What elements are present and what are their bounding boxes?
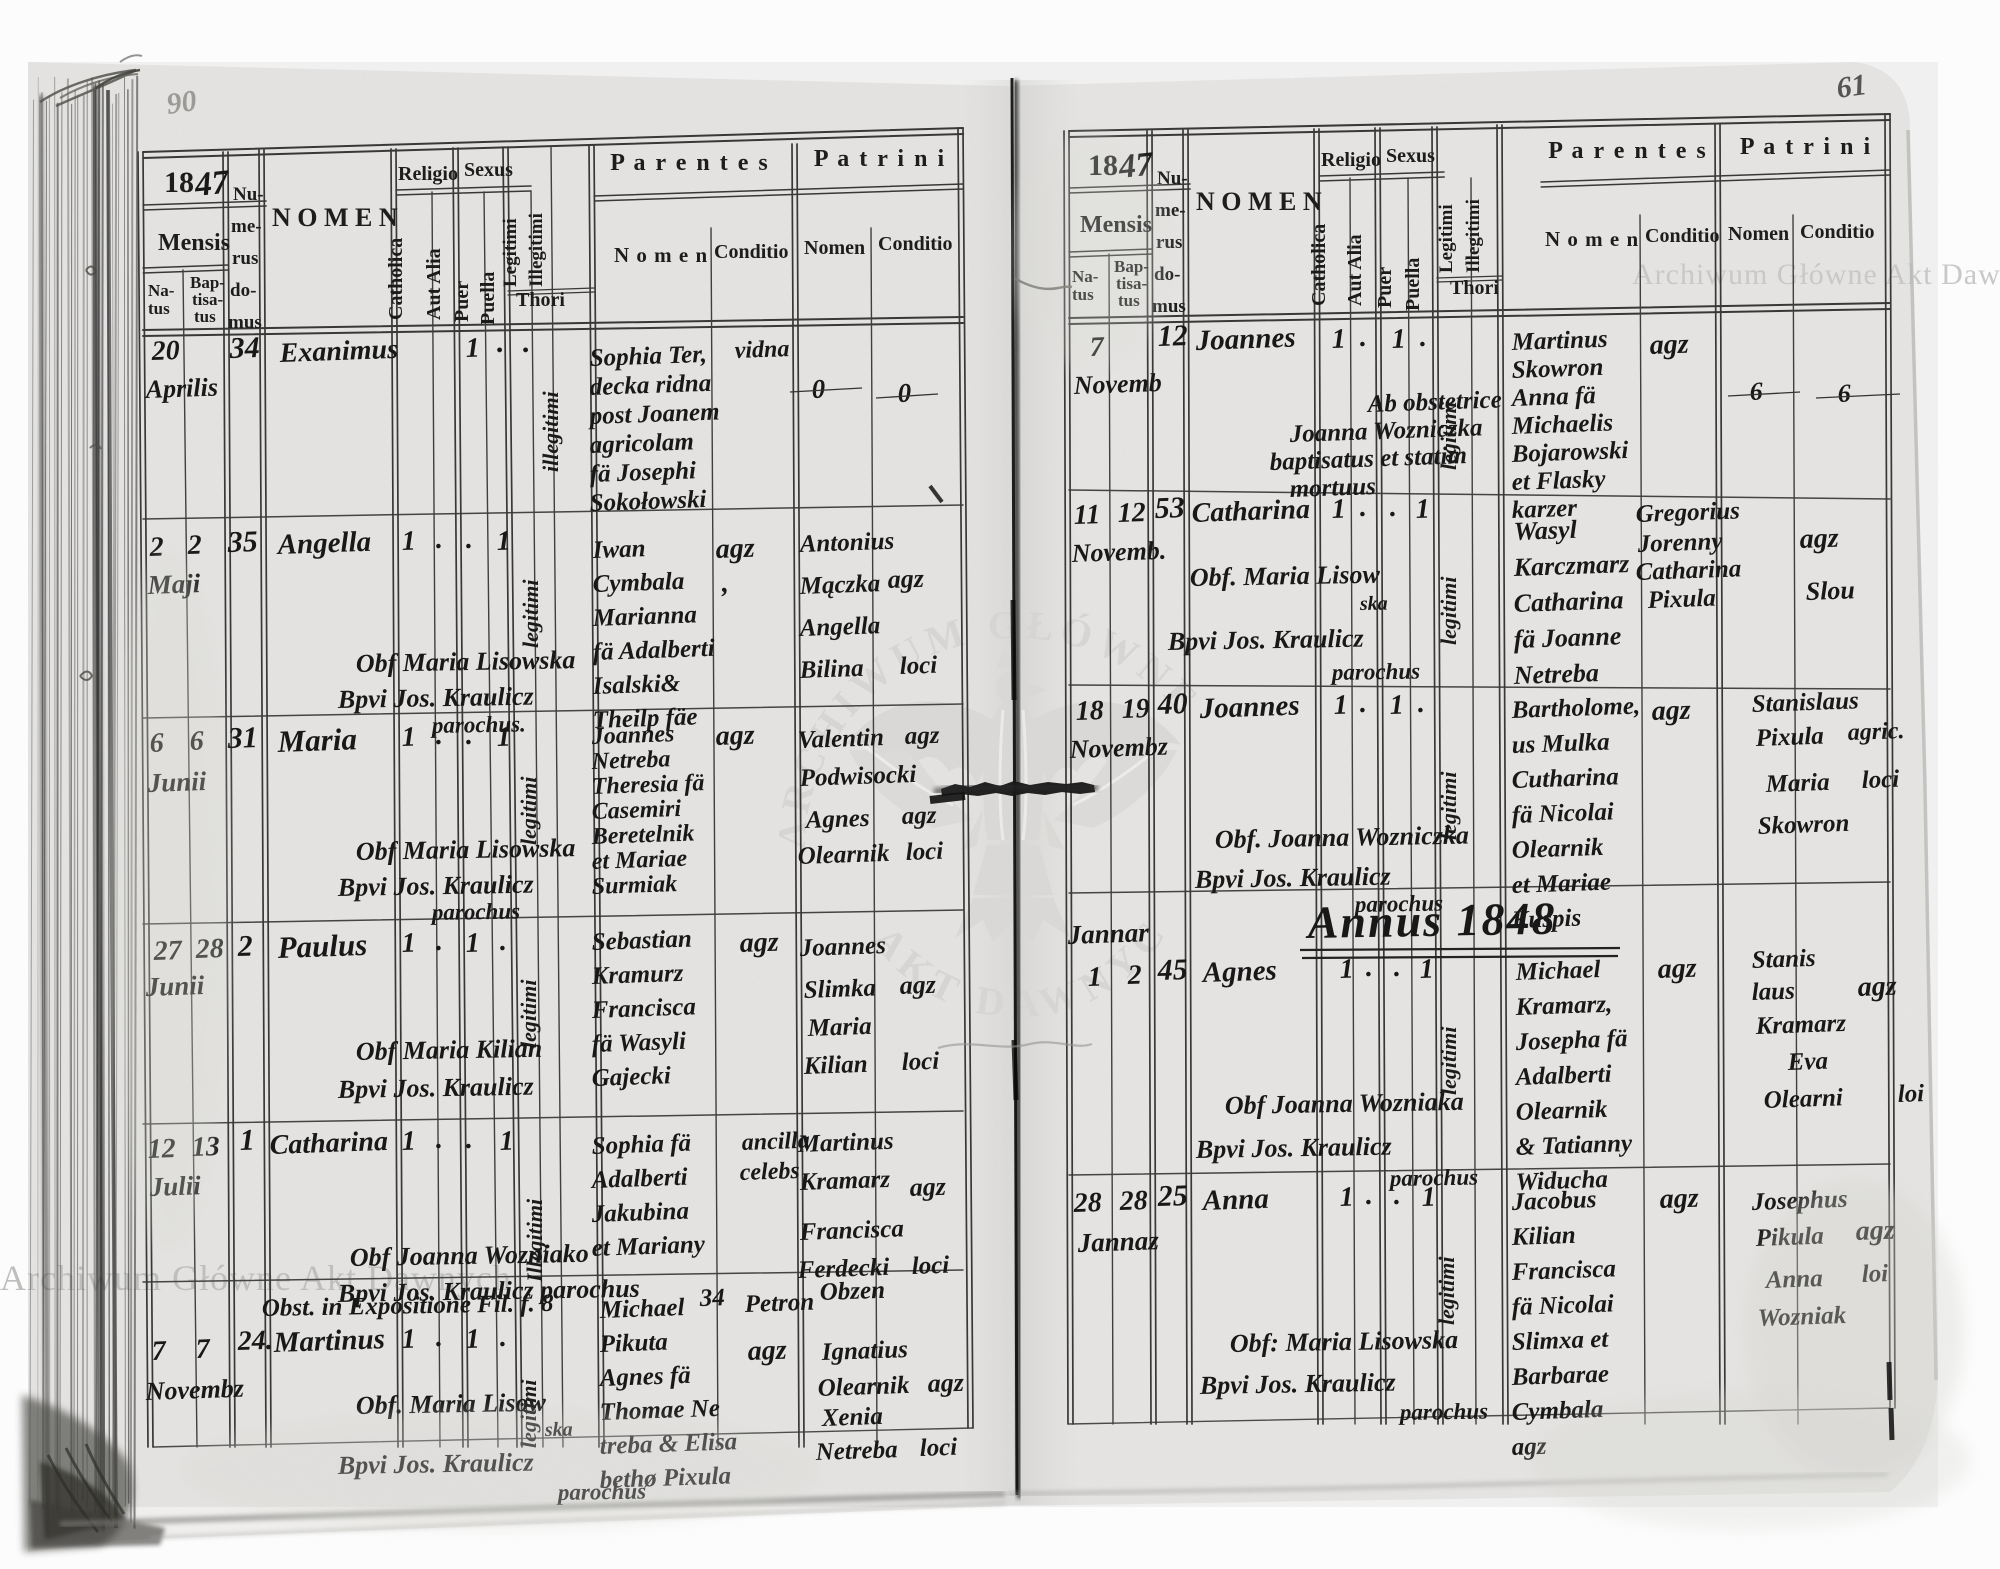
svg-text:Eva: Eva: [1786, 1048, 1828, 1076]
svg-text:1: 1: [401, 928, 416, 959]
svg-text:Olearnik: Olearnik: [797, 840, 890, 870]
svg-text:Bojarowski: Bojarowski: [1510, 437, 1629, 468]
svg-text:,: ,: [720, 568, 729, 599]
svg-text:Catharina: Catharina: [269, 1126, 388, 1161]
svg-text:Antonius: Antonius: [797, 528, 894, 558]
svg-text:agz: agz: [1657, 953, 1697, 985]
svg-text:Novembz: Novembz: [144, 1374, 245, 1406]
svg-text:fä Adalberti: fä Adalberti: [592, 635, 715, 666]
svg-text:Pixula: Pixula: [1646, 585, 1716, 614]
svg-text:loci: loci: [911, 1252, 949, 1280]
svg-text:7: 7: [195, 1333, 211, 1365]
svg-text:Jacobus: Jacobus: [1510, 1186, 1597, 1216]
svg-text:agz: agz: [1649, 329, 1689, 361]
svg-text:1: 1: [1389, 690, 1404, 721]
svg-text:Jorenny: Jorenny: [1636, 528, 1724, 558]
svg-text:Bpvi Jos. Kraulicz: Bpvi Jos. Kraulicz: [337, 1072, 535, 1104]
svg-text:tus: tus: [194, 307, 216, 326]
svg-text:Bpvi Jos. Kraulicz: Bpvi Jos. Kraulicz: [1194, 862, 1392, 894]
svg-text:fä Joanne: fä Joanne: [1513, 621, 1622, 654]
svg-text:Obf Maria Kilian: Obf Maria Kilian: [356, 1034, 543, 1066]
svg-text:Catharina: Catharina: [1635, 555, 1741, 586]
svg-text:Sexus: Sexus: [464, 159, 513, 181]
svg-text:N o m e n: N o m e n: [614, 243, 708, 267]
svg-text:et Flasky: et Flasky: [1511, 466, 1607, 496]
svg-text:me-: me-: [231, 216, 262, 237]
svg-text:legitimi: legitimi: [1434, 1256, 1459, 1325]
svg-text:Adalberti: Adalberti: [1513, 1061, 1612, 1091]
svg-text:mus: mus: [228, 312, 262, 333]
svg-text:Obf. Joanna Wozniczka: Obf. Joanna Wozniczka: [1215, 821, 1470, 854]
svg-text:.: .: [465, 720, 473, 751]
svg-text:Valentin: Valentin: [797, 724, 884, 754]
svg-text:28: 28: [1118, 1185, 1148, 1217]
svg-text:celebs: celebs: [739, 1158, 800, 1186]
svg-text:1: 1: [499, 1126, 514, 1157]
svg-text:Illegitimi: Illegitimi: [526, 213, 547, 287]
svg-text:Aprilis: Aprilis: [143, 372, 218, 404]
svg-text:decka ridna: decka ridna: [589, 370, 711, 401]
svg-text:agz: agz: [887, 564, 925, 594]
svg-text:19: 19: [1121, 693, 1150, 725]
svg-text:.: .: [1419, 322, 1427, 353]
svg-text:Cymbala: Cymbala: [592, 568, 685, 598]
svg-text:0: 0: [897, 378, 912, 408]
svg-text:.: .: [496, 326, 505, 359]
svg-text:Kramurz: Kramurz: [590, 960, 684, 990]
svg-text:2: 2: [186, 530, 202, 562]
svg-text:parochus: parochus: [430, 898, 521, 925]
svg-text:1: 1: [1339, 954, 1354, 985]
svg-text:11: 11: [1073, 499, 1101, 531]
svg-text:us Mulka: us Mulka: [1511, 729, 1610, 759]
svg-text:Maria: Maria: [276, 721, 357, 759]
svg-text:Jannaz: Jannaz: [1076, 1225, 1160, 1258]
svg-text:Kramarz: Kramarz: [1754, 1010, 1846, 1040]
svg-text:Francisca: Francisca: [1510, 1255, 1616, 1286]
svg-text:1: 1: [401, 1324, 416, 1355]
svg-text:agz: agz: [1799, 523, 1839, 555]
svg-text:Aut Alia: Aut Alia: [1344, 234, 1366, 306]
svg-text:Francisca: Francisca: [798, 1215, 904, 1246]
svg-text:1: 1: [1333, 690, 1348, 721]
svg-text:Skowron: Skowron: [1757, 810, 1850, 840]
svg-text:Conditio: Conditio: [1645, 225, 1719, 247]
svg-text:.: .: [499, 1322, 507, 1353]
svg-text:Marianna: Marianna: [591, 601, 697, 632]
svg-text:Netreba: Netreba: [1512, 658, 1599, 690]
svg-text:loci: loci: [1861, 766, 1899, 794]
svg-text:Martinus: Martinus: [272, 1323, 385, 1359]
svg-text:0: 0: [811, 374, 826, 404]
svg-text:Illegitimi: Illegitimi: [1463, 199, 1484, 273]
svg-text:agz: agz: [1857, 971, 1897, 1003]
svg-text:Anna: Anna: [1200, 1183, 1269, 1217]
svg-text:vidna: vidna: [734, 336, 790, 364]
svg-text:Obzen: Obzen: [819, 1277, 885, 1306]
svg-text:Olearnik: Olearnik: [817, 1372, 910, 1402]
svg-text:Mensis: Mensis: [158, 230, 230, 256]
svg-text:loci: loci: [905, 838, 943, 866]
svg-text:Religio: Religio: [398, 163, 458, 185]
svg-text:.: .: [435, 1322, 443, 1353]
svg-text:Petron: Petron: [743, 1289, 814, 1318]
svg-text:legitimi: legitimi: [1436, 1026, 1461, 1095]
svg-text:Michael: Michael: [598, 1294, 685, 1324]
svg-text:Cutharina: Cutharina: [1511, 763, 1619, 794]
svg-text:Paulus: Paulus: [276, 927, 368, 965]
svg-text:18: 18: [164, 166, 194, 199]
svg-text:agric.: agric.: [1847, 718, 1905, 746]
svg-text:.: .: [435, 524, 443, 555]
svg-text:Gajecki: Gajecki: [591, 1062, 671, 1092]
svg-text:Joannes: Joannes: [1194, 322, 1296, 358]
svg-text:P a t r i n i: P a t r i n i: [1740, 134, 1872, 160]
svg-text:Joannes: Joannes: [798, 932, 886, 962]
svg-text:1: 1: [465, 333, 480, 364]
svg-text:Sophia Ter,: Sophia Ter,: [589, 341, 707, 372]
svg-text:Ab obstetrice: Ab obstetrice: [1365, 386, 1502, 418]
svg-text:1: 1: [1391, 324, 1406, 355]
svg-text:Isalski&: Isalski&: [591, 670, 681, 700]
svg-text:34: 34: [698, 1284, 725, 1312]
svg-text:agricolam: agricolam: [589, 428, 694, 459]
svg-text:1: 1: [1331, 324, 1346, 355]
svg-text:agz: agz: [715, 533, 755, 565]
svg-text:1: 1: [1415, 494, 1430, 525]
svg-text:1: 1: [1339, 1182, 1354, 1213]
svg-text:Thori: Thori: [516, 289, 565, 311]
svg-text:Thori: Thori: [1450, 277, 1499, 299]
svg-text:Slimka: Slimka: [803, 974, 876, 1004]
svg-text:Aut Alia: Aut Alia: [423, 248, 445, 320]
svg-text:Annus 1848: Annus 1848: [1304, 893, 1557, 948]
svg-text:agz: agz: [904, 722, 940, 750]
svg-text:Jannar: Jannar: [1066, 917, 1150, 950]
svg-text:Obf Maria Lisowska: Obf Maria Lisowska: [356, 833, 576, 866]
svg-text:Martinus: Martinus: [1510, 326, 1608, 356]
svg-text:Nomen: Nomen: [1728, 223, 1789, 245]
svg-text:agz: agz: [715, 720, 755, 752]
svg-text:Archiwum Główne Akt Dawnych: Archiwum Główne Akt Dawnych: [1632, 258, 2000, 291]
svg-text:2: 2: [236, 929, 253, 963]
svg-text:N O M E N: N O M E N: [272, 203, 398, 232]
svg-text:Conditio: Conditio: [1800, 221, 1874, 243]
svg-text:Sebastian: Sebastian: [591, 926, 692, 956]
svg-text:Jakubina: Jakubina: [590, 1198, 689, 1228]
svg-text:N O M E N: N O M E N: [1196, 187, 1322, 216]
svg-text:Ignatius: Ignatius: [820, 1336, 908, 1366]
svg-text:.: .: [522, 326, 531, 359]
svg-text:Joannes: Joannes: [1198, 690, 1300, 726]
svg-text:Maria: Maria: [1764, 769, 1830, 798]
svg-text:.: .: [499, 926, 507, 957]
svg-text:Conditio: Conditio: [714, 241, 788, 263]
svg-text:ska: ska: [1359, 593, 1388, 615]
svg-text:Anna fä: Anna fä: [1509, 382, 1596, 412]
svg-text:18: 18: [1075, 695, 1104, 727]
svg-text:Michaelis: Michaelis: [1510, 409, 1613, 440]
svg-text:loci: loci: [899, 652, 937, 680]
svg-text:parochus: parochus: [1398, 1398, 1489, 1425]
svg-text:Sexus: Sexus: [1386, 145, 1435, 167]
svg-text:agz: agz: [739, 927, 779, 959]
svg-text:1: 1: [1087, 962, 1102, 993]
svg-text:Adalberti: Adalberti: [589, 1164, 688, 1194]
svg-text:Nu-: Nu-: [1157, 168, 1188, 189]
svg-text:Sokołowski: Sokołowski: [589, 486, 707, 517]
svg-text:7: 7: [151, 1335, 167, 1367]
svg-text:illegitimi: illegitimi: [538, 390, 563, 472]
svg-text:legitimi: legitimi: [1436, 576, 1461, 645]
svg-text:agz: agz: [899, 970, 937, 1000]
svg-text:Novemb.: Novemb.: [1070, 536, 1167, 568]
svg-text:Xenia: Xenia: [820, 1403, 883, 1432]
svg-text:Martinus: Martinus: [796, 1128, 894, 1158]
svg-text:Agnes fä: Agnes fä: [597, 1362, 691, 1392]
svg-text:Olearnik: Olearnik: [1511, 834, 1604, 864]
svg-text:Obst. in Expositione Fil.: Obst. in Expositione Fil. f. 8: [262, 1290, 555, 1322]
svg-text:Legitimi: Legitimi: [500, 218, 521, 287]
svg-text:P a r e n t e s: P a r e n t e s: [610, 150, 770, 176]
svg-text:.: .: [1365, 1180, 1373, 1211]
svg-text:Agnes: Agnes: [803, 805, 870, 834]
svg-text:Kramarz: Kramarz: [798, 1166, 890, 1196]
svg-text:rus: rus: [232, 248, 258, 269]
svg-text:Kilian: Kilian: [1510, 1222, 1576, 1251]
svg-text:Olearnik: Olearnik: [1515, 1096, 1608, 1126]
svg-text:Netreba: Netreba: [814, 1436, 898, 1466]
svg-text:Kilian: Kilian: [802, 1051, 868, 1080]
svg-text:agz: agz: [927, 1368, 965, 1398]
svg-text:Iwan: Iwan: [591, 535, 646, 564]
svg-text:Kramarz,: Kramarz,: [1514, 991, 1612, 1021]
svg-text:31: 31: [226, 721, 258, 755]
svg-text:Religio: Religio: [1321, 149, 1381, 171]
svg-text:53: 53: [1154, 491, 1185, 525]
svg-text:Pikuta: Pikuta: [598, 1329, 668, 1358]
svg-text:.: .: [1389, 492, 1397, 523]
svg-text:.: .: [1417, 688, 1425, 719]
svg-text:Puer: Puer: [1374, 267, 1396, 308]
svg-text:28: 28: [1072, 1187, 1102, 1219]
svg-text:Skowron: Skowron: [1511, 354, 1604, 384]
svg-text:24.: 24.: [236, 1325, 273, 1357]
svg-text:34: 34: [228, 331, 260, 365]
svg-text:agz: agz: [747, 1335, 787, 1367]
svg-text:Angella: Angella: [797, 612, 880, 642]
svg-text:laus: laus: [1751, 978, 1795, 1006]
svg-text:Obf. Maria Lisow: Obf. Maria Lisow: [1190, 560, 1381, 592]
svg-text:Slimxa et: Slimxa et: [1511, 1326, 1609, 1356]
svg-text:1: 1: [401, 1126, 416, 1157]
svg-text:Bpvi Jos. Kraulicz: Bpvi Jos. Kraulicz: [1167, 624, 1365, 656]
svg-text:Podwisocki: Podwisocki: [798, 761, 917, 792]
svg-text:Catharina: Catharina: [1513, 585, 1624, 618]
svg-text:Angella: Angella: [275, 526, 372, 561]
svg-text:Stanis: Stanis: [1751, 945, 1816, 974]
svg-text:Puer: Puer: [451, 281, 473, 322]
svg-text:loi: loi: [1897, 1080, 1924, 1108]
svg-text:Bpvi Jos. Kraulicz: Bpvi Jos. Kraulicz: [337, 682, 535, 714]
svg-text:.: .: [465, 524, 473, 555]
svg-text:1: 1: [401, 526, 416, 557]
svg-text:12: 12: [1157, 319, 1188, 353]
svg-text:Maria: Maria: [806, 1013, 872, 1042]
svg-text:Olearni: Olearni: [1763, 1084, 1843, 1114]
svg-text:Na-: Na-: [148, 281, 175, 300]
svg-text:90: 90: [164, 84, 198, 121]
svg-text:47: 47: [192, 163, 233, 204]
svg-text:6: 6: [1749, 377, 1763, 406]
svg-text:61: 61: [1834, 68, 1868, 105]
svg-text:fä Nicolai: fä Nicolai: [1511, 1290, 1614, 1321]
svg-text:1: 1: [1419, 954, 1434, 985]
svg-text:Bilina: Bilina: [798, 655, 864, 684]
svg-text:.: .: [435, 926, 443, 957]
svg-text:Exanimus: Exanimus: [278, 334, 398, 369]
svg-text:Catholica: Catholica: [385, 238, 407, 320]
svg-text:do-: do-: [230, 280, 256, 301]
svg-text:1: 1: [1421, 1182, 1436, 1213]
svg-text:20: 20: [150, 335, 180, 367]
svg-text:Novembz: Novembz: [1068, 732, 1169, 764]
svg-text:legitimi: legitimi: [518, 579, 543, 648]
svg-text:Obf Joanna Wozniako: Obf Joanna Wozniako: [350, 1239, 589, 1272]
svg-text:Catharina: Catharina: [1191, 494, 1310, 529]
svg-text:.: .: [435, 720, 443, 751]
svg-text:fä Nicolai: fä Nicolai: [1511, 798, 1614, 829]
svg-text:Mączka: Mączka: [798, 570, 880, 600]
svg-text:agz: agz: [901, 802, 937, 830]
svg-text:40: 40: [1156, 687, 1188, 721]
svg-text:.: .: [1359, 492, 1367, 523]
svg-text:et Mariany: et Mariany: [591, 1231, 706, 1262]
svg-text:fä Josephi: fä Josephi: [589, 457, 696, 488]
svg-text:Nu-: Nu-: [233, 184, 264, 205]
svg-text:Puella: Puella: [477, 272, 499, 325]
svg-text:Karczmarz: Karczmarz: [1512, 549, 1630, 582]
svg-text:2: 2: [1126, 960, 1142, 992]
svg-text:12: 12: [1117, 497, 1146, 529]
svg-text:.: .: [1359, 322, 1367, 353]
svg-text:parochus: parochus: [1330, 658, 1421, 685]
svg-text:loci: loci: [901, 1048, 939, 1076]
svg-text:Stanislaus: Stanislaus: [1751, 687, 1859, 718]
svg-text:1: 1: [401, 722, 416, 753]
svg-text:parochus.: parochus.: [430, 711, 526, 738]
svg-text:1: 1: [239, 1123, 255, 1157]
svg-text:N o m e n: N o m e n: [1545, 227, 1639, 251]
svg-text:45: 45: [1156, 953, 1188, 987]
svg-text:.: .: [1393, 1180, 1401, 1211]
svg-text:1: 1: [465, 1324, 480, 1355]
svg-text:Novemb: Novemb: [1072, 368, 1162, 400]
svg-text:agz: agz: [1651, 695, 1691, 727]
svg-text:Puella: Puella: [1402, 258, 1424, 311]
svg-text:Josepha fä: Josepha fä: [1514, 1025, 1628, 1056]
svg-text:loci: loci: [919, 1434, 957, 1462]
svg-text:P a t r i n i: P a t r i n i: [814, 146, 946, 172]
svg-text:Pixula: Pixula: [1754, 723, 1824, 752]
svg-text:Bpvi Jos. Kraulicz: Bpvi Jos. Kraulicz: [1199, 1368, 1397, 1400]
svg-text:Theresia fä: Theresia fä: [591, 770, 704, 800]
svg-text:agz: agz: [1659, 1183, 1699, 1215]
svg-text:Obf Maria Lisowska: Obf Maria Lisowska: [356, 645, 576, 678]
svg-text:P a r e n t e s: P a r e n t e s: [1548, 138, 1708, 164]
svg-text:.: .: [1359, 688, 1367, 719]
svg-text:Gregorius: Gregorius: [1635, 497, 1740, 528]
svg-text:Slou: Slou: [1805, 575, 1855, 606]
svg-text:1: 1: [465, 928, 480, 959]
svg-text:Bartholome,: Bartholome,: [1510, 693, 1640, 725]
svg-text:35: 35: [226, 525, 258, 559]
svg-text:Bpvi Jos. Kraulicz: Bpvi Jos. Kraulicz: [1195, 1132, 1393, 1164]
svg-text:Michael: Michael: [1514, 956, 1601, 986]
svg-text:.: .: [465, 1124, 473, 1155]
svg-text:& Tatianny: & Tatianny: [1515, 1130, 1633, 1161]
svg-text:Agnes: Agnes: [1200, 954, 1277, 989]
svg-text:Barbarae: Barbarae: [1510, 1361, 1609, 1391]
svg-text:25: 25: [1156, 1179, 1188, 1213]
svg-text:.: .: [1393, 952, 1401, 983]
svg-text:post Joanem: post Joanem: [587, 398, 720, 430]
svg-text:1: 1: [496, 526, 511, 557]
svg-text:1: 1: [1331, 494, 1346, 525]
svg-text:tus: tus: [148, 299, 170, 318]
svg-text:6: 6: [1837, 379, 1851, 408]
svg-text:.: .: [1365, 952, 1373, 983]
svg-text:Catholica: Catholica: [1308, 224, 1330, 306]
svg-text:Francisca: Francisca: [590, 993, 696, 1024]
svg-text:1: 1: [496, 722, 511, 753]
svg-text:Wasyl: Wasyl: [1513, 515, 1578, 546]
svg-text:fä Wasyli: fä Wasyli: [591, 1028, 686, 1058]
svg-text:agz: agz: [909, 1172, 947, 1202]
svg-text:.: .: [435, 1124, 443, 1155]
svg-text:Conditio: Conditio: [878, 233, 952, 255]
svg-text:Sophia fä: Sophia fä: [591, 1130, 691, 1160]
svg-text:Legitimi: Legitimi: [1436, 204, 1457, 273]
svg-text:Obf: Maria Lisowska: Obf: Maria Lisowska: [1230, 1325, 1459, 1358]
svg-text:Surmiak: Surmiak: [591, 871, 677, 900]
svg-text:Obf Joanna Wozniaka: Obf Joanna Wozniaka: [1225, 1087, 1464, 1120]
svg-text:Nomen: Nomen: [804, 237, 865, 259]
svg-text:Bpvi Jos. Kraulicz: Bpvi Jos. Kraulicz: [337, 870, 535, 902]
